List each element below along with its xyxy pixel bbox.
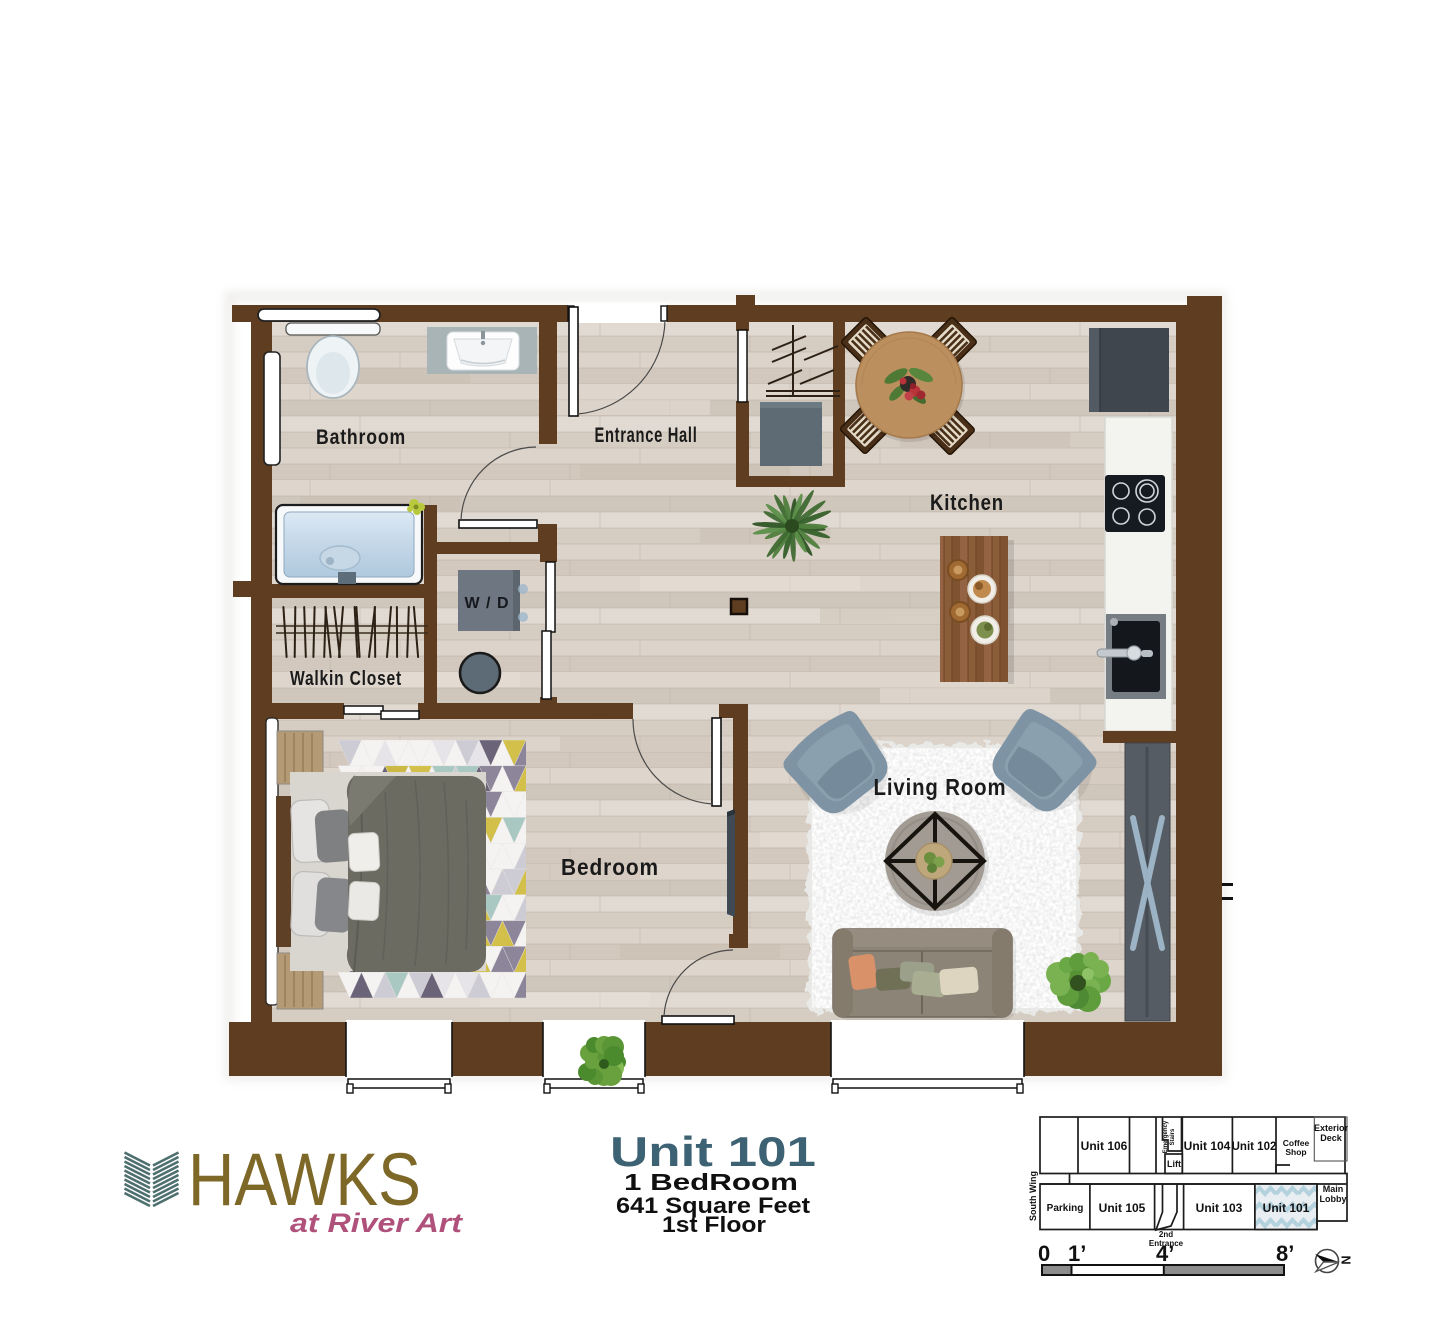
svg-text:8’: 8’	[1276, 1241, 1294, 1266]
svg-text:4’: 4’	[1156, 1241, 1174, 1266]
svg-text:Parking: Parking	[1047, 1203, 1084, 1214]
svg-text:Unit 101: Unit 101	[610, 1128, 816, 1175]
svg-text:Exterior: Exterior	[1314, 1123, 1349, 1133]
svg-text:2nd: 2nd	[1159, 1230, 1173, 1239]
svg-text:0: 0	[1038, 1241, 1050, 1266]
svg-text:Unit 103: Unit 103	[1196, 1201, 1243, 1215]
svg-text:W / D: W / D	[465, 595, 510, 612]
svg-text:Kitchen: Kitchen	[930, 490, 1004, 515]
svg-text:Emergency: Emergency	[1163, 1120, 1169, 1153]
svg-text:Shop: Shop	[1285, 1147, 1306, 1157]
svg-text:Main: Main	[1323, 1184, 1344, 1194]
svg-text:Deck: Deck	[1320, 1133, 1343, 1143]
svg-text:1’: 1’	[1068, 1241, 1086, 1266]
svg-text:at River Art: at River Art	[290, 1208, 463, 1238]
svg-text:Unit 105: Unit 105	[1099, 1201, 1146, 1215]
svg-text:Bathroom: Bathroom	[316, 426, 406, 449]
svg-text:Bedroom: Bedroom	[561, 854, 659, 880]
svg-text:1 BedRoom: 1 BedRoom	[624, 1169, 798, 1195]
svg-text:Lobby: Lobby	[1320, 1194, 1347, 1204]
svg-text:Unit 104: Unit 104	[1184, 1139, 1231, 1153]
svg-text:South Wing: South Wing	[1028, 1171, 1038, 1221]
svg-text:Lift: Lift	[1167, 1159, 1181, 1169]
svg-text:Unit 102: Unit 102	[1232, 1141, 1277, 1153]
svg-text:Unit 101: Unit 101	[1263, 1201, 1310, 1215]
svg-text:Walkin Closet: Walkin Closet	[290, 668, 402, 690]
svg-text:Unit 106: Unit 106	[1081, 1139, 1128, 1153]
svg-text:N: N	[1339, 1256, 1353, 1265]
svg-text:Stairs: Stairs	[1170, 1128, 1176, 1145]
svg-text:Entrance Hall: Entrance Hall	[595, 424, 698, 447]
svg-text:Living Room: Living Room	[874, 774, 1007, 800]
svg-text:1st Floor: 1st Floor	[662, 1212, 766, 1237]
